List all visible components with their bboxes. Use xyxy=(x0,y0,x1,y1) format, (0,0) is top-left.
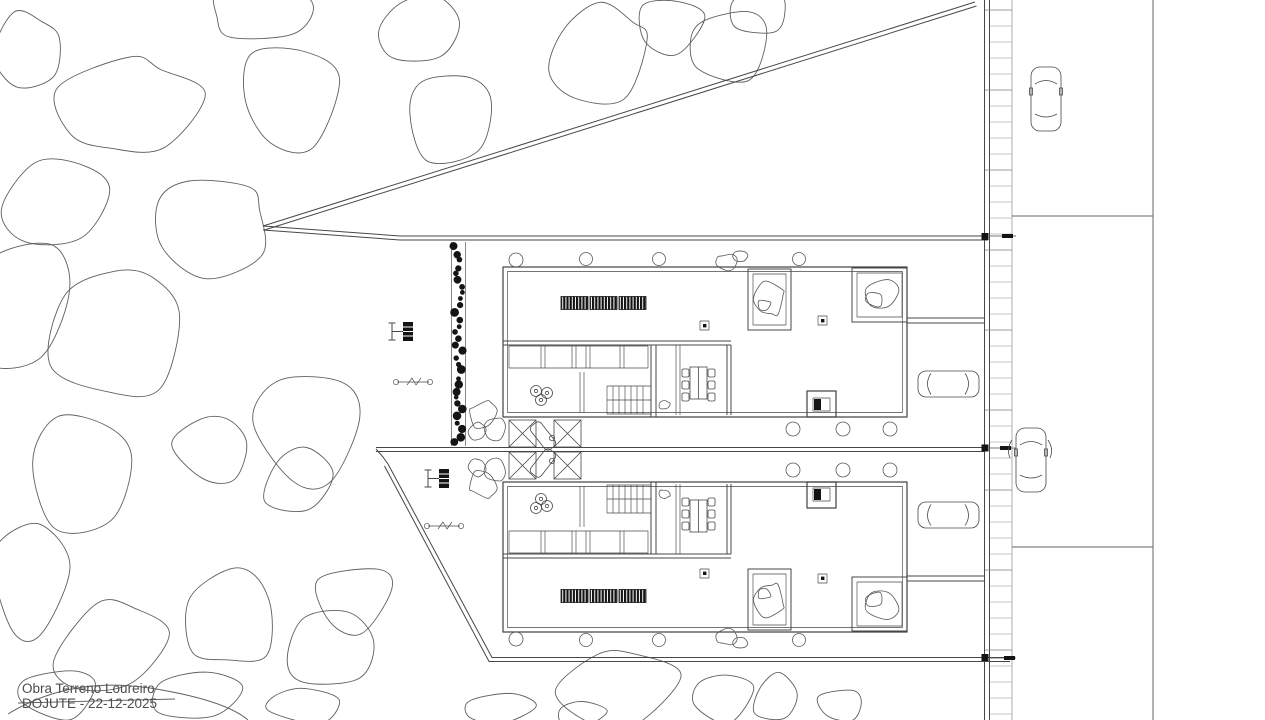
rock-outline xyxy=(379,0,460,61)
rock-outline xyxy=(253,377,360,490)
picnic-table-symbol xyxy=(389,322,414,341)
plot-boundary xyxy=(263,2,1010,662)
hedge-blob xyxy=(457,365,466,374)
hedge-blob xyxy=(453,271,459,277)
rock-outline xyxy=(213,0,313,39)
rock-outline xyxy=(243,48,339,153)
hedge-blob xyxy=(454,355,459,360)
title-project: Obra Terreno Loureiro xyxy=(22,681,155,696)
hedge-blob xyxy=(458,296,463,301)
hedge-strip xyxy=(450,242,467,446)
rock-outline xyxy=(0,523,70,641)
rock-outline xyxy=(558,701,607,720)
survey-marker-symbol xyxy=(393,378,432,385)
hedge-blob xyxy=(455,335,462,342)
picnic-table-symbol xyxy=(425,469,450,488)
rock-outline xyxy=(53,600,169,691)
sidewalk xyxy=(982,0,1017,720)
rock-outline xyxy=(264,447,333,511)
rock-outline xyxy=(549,2,648,104)
rock-outline xyxy=(152,672,242,718)
survey-marker-symbol xyxy=(424,522,463,529)
rock-outline xyxy=(692,675,753,720)
hedge-blob xyxy=(452,342,459,349)
hedge-blob xyxy=(450,242,458,250)
hedge-blob xyxy=(453,412,462,421)
road xyxy=(1012,0,1153,720)
rock-outline xyxy=(54,56,205,152)
hedge-blob xyxy=(459,284,465,290)
rock-outline xyxy=(172,416,247,483)
title-date: DOJUTE - 22-12-2025 xyxy=(22,696,157,711)
rock-outline xyxy=(817,690,861,720)
hedge-blob xyxy=(457,317,464,324)
car-symbol xyxy=(1015,428,1048,492)
hedge-blob xyxy=(450,438,458,446)
hedge-blob xyxy=(453,388,461,396)
rock-outline xyxy=(0,10,60,88)
hedge-blob xyxy=(458,425,466,433)
rock-outline xyxy=(266,688,340,720)
rock-outline xyxy=(410,76,492,164)
rock-outline xyxy=(186,568,273,662)
hedge-blob xyxy=(455,380,463,388)
rock-outline xyxy=(1,159,110,245)
hedge-blob xyxy=(457,302,463,308)
rock-outlines xyxy=(0,0,861,720)
hedge-blob xyxy=(458,405,467,414)
hedge-blob xyxy=(460,290,465,295)
hedge-blob xyxy=(454,276,462,284)
hedge-blob xyxy=(452,329,458,335)
hedge-blob xyxy=(450,308,459,317)
car-symbol xyxy=(1030,67,1063,131)
rock-outline xyxy=(156,180,266,279)
hedge-blob xyxy=(457,324,462,329)
rock-outline xyxy=(287,611,374,685)
upper-unit xyxy=(468,251,984,452)
hedge-blob xyxy=(458,347,466,355)
rock-outline xyxy=(48,270,180,397)
rock-outline xyxy=(730,0,785,33)
rock-outline xyxy=(555,650,681,720)
site-plan-page: Obra Terreno Loureiro DOJUTE - 22-12-202… xyxy=(0,0,1265,720)
rock-outline xyxy=(33,415,132,534)
hedge-blob xyxy=(455,421,460,426)
site-plan-canvas: Obra Terreno Loureiro DOJUTE - 22-12-202… xyxy=(0,0,1265,720)
lower-unit xyxy=(468,447,984,648)
rock-outline xyxy=(465,693,536,720)
hedge-blob xyxy=(457,257,463,263)
hedge-blob xyxy=(454,395,459,400)
rock-outline xyxy=(315,569,392,635)
rock-outline xyxy=(753,672,797,719)
